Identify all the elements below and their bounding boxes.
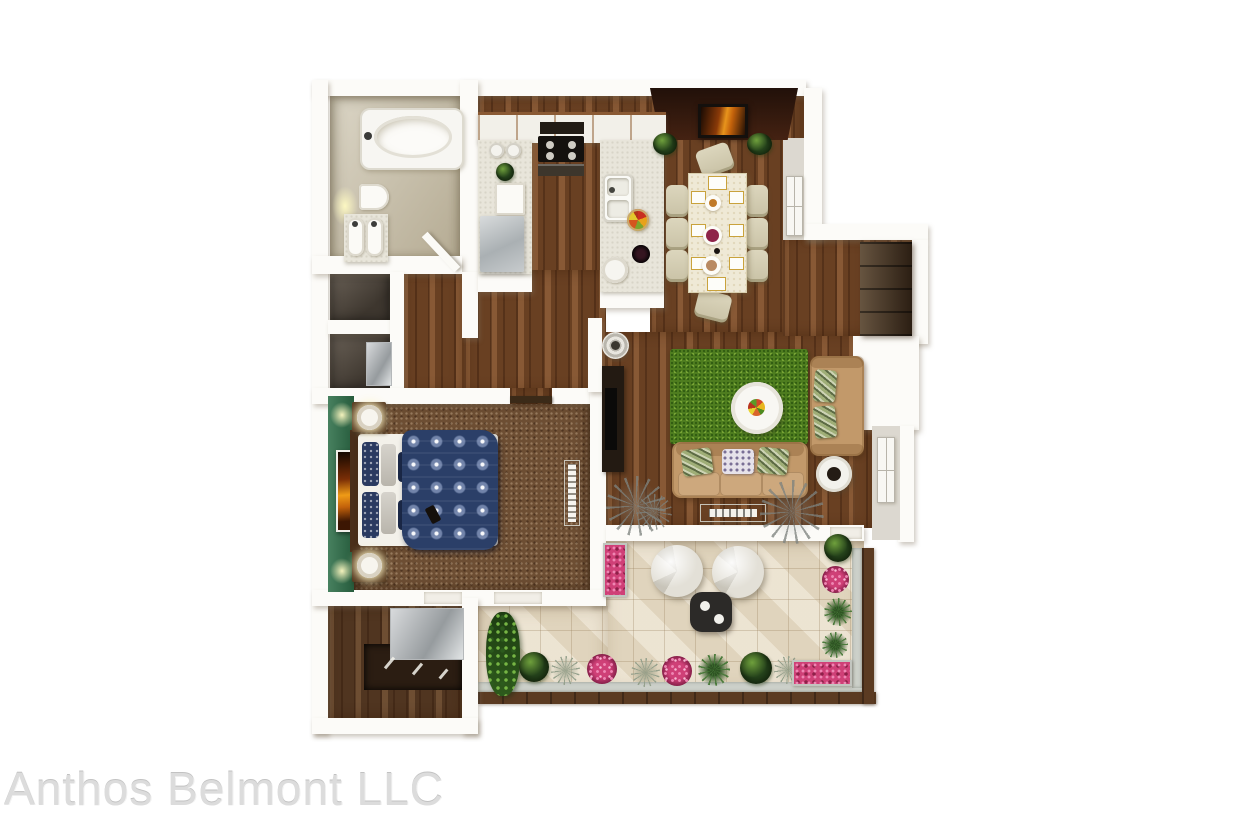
sink-faucet: [371, 221, 377, 227]
patio-plant: [698, 654, 730, 686]
counter-end-left: [478, 272, 532, 292]
dish-food: [706, 229, 719, 242]
patio-lounge-pouf: [712, 546, 764, 598]
patterned-duvet: [402, 430, 498, 550]
patio-tall-plant: [486, 612, 520, 696]
patio-rail-right: [862, 548, 874, 704]
flower-planter-vertical: [603, 543, 627, 597]
bed-pillow: [381, 444, 396, 486]
dishwasher: [495, 183, 525, 215]
entry-closet-cabinet: [860, 242, 912, 336]
counter-end-right: [600, 290, 664, 308]
sink-faucet: [609, 187, 615, 193]
dining-chair: [666, 218, 688, 250]
throw-pillow: [813, 369, 838, 403]
closet-mirror-panel: [390, 608, 464, 660]
hallway-floor: [402, 272, 464, 392]
wall-closets-right: [390, 272, 404, 392]
patio-shrub: [824, 534, 852, 562]
burner: [546, 141, 554, 149]
dish-food: [709, 199, 717, 207]
patio-grass: [551, 656, 580, 685]
nightstand-lamp: [357, 553, 382, 578]
dining-wall-art: [698, 104, 748, 138]
kitchen-plant: [496, 163, 514, 181]
wall-closets-mid: [328, 320, 392, 334]
dish-food: [706, 260, 717, 271]
bathtub-basin: [374, 116, 452, 158]
wall-bathroom-right: [460, 80, 478, 272]
door-threshold: [494, 592, 542, 604]
decor-plant-gray: [760, 480, 824, 544]
wall-hall-right: [462, 272, 478, 338]
wall-living-right-outer: [898, 426, 914, 542]
patio-shrub: [740, 652, 772, 684]
throw-pillow: [813, 405, 838, 439]
dining-chair: [666, 250, 688, 282]
refrigerator: [480, 216, 524, 272]
oven-front: [538, 164, 584, 176]
patio-flowers: [822, 566, 849, 593]
watermark: Anthos Belmont LLC: [4, 762, 444, 816]
bed-pillow: [381, 492, 396, 534]
wall-entry-top: [804, 224, 928, 240]
patio-rail-bottom: [478, 692, 876, 704]
loveseat-arm: [810, 356, 864, 368]
toilet: [359, 184, 389, 210]
patio-flowers: [662, 656, 692, 686]
dining-plant-right: [747, 133, 772, 155]
dining-chair: [666, 185, 688, 217]
table-flowers: [748, 399, 765, 416]
burner: [568, 152, 576, 160]
dining-window: [786, 176, 803, 236]
placemat: [708, 176, 727, 190]
burner: [546, 152, 554, 160]
placemat: [729, 224, 744, 237]
dining-chair: [746, 218, 768, 250]
wall-left: [312, 80, 328, 734]
placemat: [729, 257, 744, 270]
placemat: [707, 277, 726, 291]
wall-entry-right: [912, 240, 928, 344]
loveseat-arm: [810, 444, 864, 456]
wall-closet-right: [462, 598, 478, 734]
patio-cup: [700, 601, 710, 611]
bed-pillow: [362, 442, 379, 486]
patio-rail-inner-right: [852, 548, 862, 688]
fruit-bowl: [627, 209, 649, 231]
wall-sconce-glow: [330, 402, 354, 428]
range-hood: [540, 122, 584, 134]
bedroom-air-vent: [564, 460, 580, 526]
throw-pillow: [757, 447, 790, 476]
bathtub-faucet: [364, 132, 372, 140]
canister: [489, 143, 504, 158]
wall-living-stub: [588, 318, 602, 392]
placemat: [691, 191, 706, 204]
patio-lounge-pouf: [651, 545, 703, 597]
decor-pot-center: [611, 341, 620, 350]
decor-plant-gray: [636, 494, 672, 530]
burner: [568, 141, 576, 149]
wall-sconce-glow: [330, 558, 354, 584]
patio-cup: [714, 614, 724, 624]
patio-side-table: [690, 592, 732, 632]
dining-plant-left: [653, 133, 677, 155]
baseboard-heater: [700, 504, 766, 522]
nightstand-lamp: [357, 405, 382, 430]
cooktop: [538, 136, 584, 162]
side-table-top: [827, 467, 841, 481]
flower-planter-horizontal: [792, 660, 852, 686]
sink-faucet: [352, 221, 358, 227]
bedroom-door-leaf: [510, 396, 552, 403]
sofa-cushion: [720, 472, 762, 496]
patio-flowers: [587, 654, 617, 684]
floor-plan-image: Anthos Belmont LLC: [0, 0, 1250, 833]
placemat: [729, 191, 744, 204]
wall-dining-right: [804, 88, 822, 240]
berry-bowl: [632, 245, 650, 263]
dining-chair: [746, 185, 768, 217]
wall-bottom-left: [312, 718, 478, 734]
dining-chair: [746, 250, 768, 282]
patio-grass: [631, 658, 660, 687]
canister: [506, 143, 521, 158]
patio-plant: [822, 632, 848, 658]
table-decor: [714, 248, 720, 254]
living-window: [877, 437, 895, 503]
linen-closet-floor: [330, 272, 390, 322]
washer: [366, 342, 392, 386]
tv-screen: [605, 388, 617, 450]
throw-pillow: [722, 449, 754, 474]
throw-pillow: [680, 447, 713, 477]
counter-plate: [602, 257, 628, 283]
sink-basin: [607, 200, 629, 218]
patio-plant: [824, 598, 852, 626]
patio-shrub: [519, 652, 549, 682]
door-threshold: [424, 592, 462, 604]
bed-pillow: [362, 492, 379, 538]
